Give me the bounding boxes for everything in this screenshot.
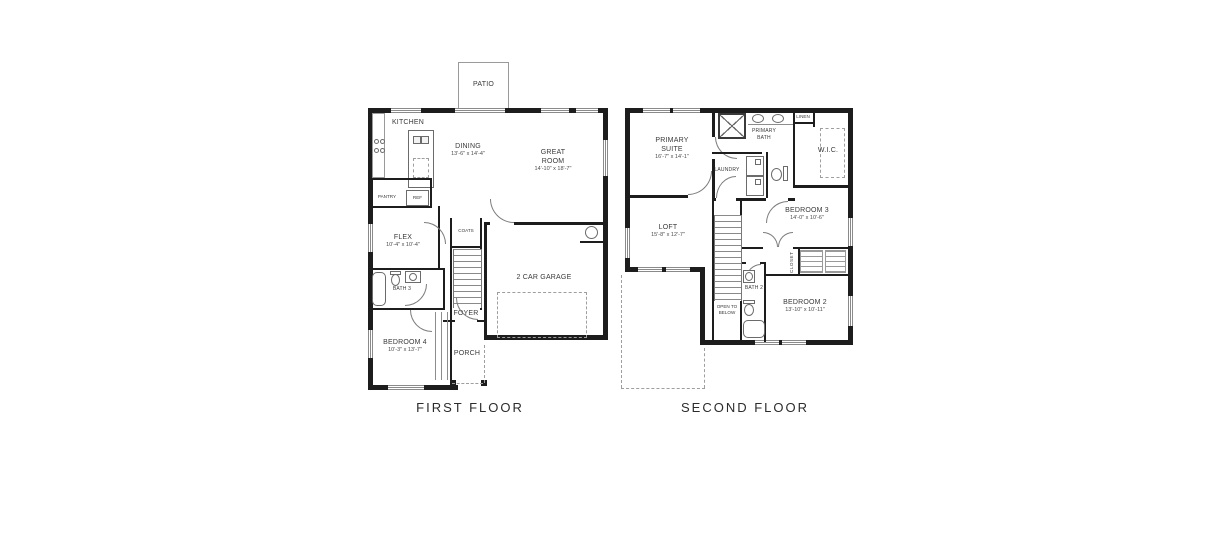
linen-label: LINEN [796,114,810,119]
room-label-bedroom4: BEDROOM 4 10'-3" x 13'-7" [376,338,434,354]
sink-icon [745,272,753,281]
patio-label: PATIO [473,81,494,88]
vanity-counter-line [748,124,793,125]
closet-shelves [825,250,846,273]
room-label-bedroom3: BEDROOM 3 14'-0" x 10'-6" [778,206,836,222]
bedroom2-dims: 13'-10" x 10'-11" [776,307,834,314]
closet-label: CLOSET [789,251,794,272]
laundry-label: LAUNDRY [714,167,739,173]
coats-label: COATS [458,228,473,233]
wall-segment [712,152,762,154]
sink-icon [752,114,764,123]
closet-door-line [435,312,436,380]
room-label-bedroom2: BEDROOM 2 13'-10" x 10'-11" [776,298,834,314]
bath2-label: BATH 2 [745,285,763,291]
closet-door-arc [778,232,793,247]
closet-door-arc [763,232,778,247]
wall-segment [793,122,813,124]
room-label-kitchen: KITCHEN [383,118,433,127]
garage-label: 2 CAR GARAGE [517,274,572,281]
window [576,108,598,113]
room-label-patio: PATIO [458,80,509,89]
window [368,224,373,252]
shower-icon [718,113,746,139]
loft-label: LOFT [659,224,678,231]
toilet-tank-icon [783,166,788,181]
wall-segment [712,113,715,137]
loft-dims: 15'-8" x 12'-7" [643,232,693,239]
wall-segment [373,178,432,180]
pantry-label: PANTRY [378,194,396,199]
primary-bath-label: PRIMARY BATH [752,128,776,141]
patio-slider-door [455,108,505,113]
range-burner-icon [374,148,379,153]
room-label-great-room: GREAT ROOM 14'-10" x 18'-7" [530,148,576,173]
room-label-coats: COATS [452,228,480,234]
window [755,340,779,345]
window [625,228,630,258]
wall-segment [630,195,688,198]
room-label-closet: CLOSET [789,249,798,275]
wall-segment [580,241,603,243]
room-label-bath2: BATH 2 [744,285,764,292]
flex-dims: 10'-4" x 10'-4" [378,242,428,249]
door-arc [410,310,432,332]
window [391,108,421,113]
water-heater-icon [585,226,598,239]
great-room-dims: 14'-10" x 18'-7" [530,166,576,173]
stairs [714,215,742,301]
floor-plan-canvas: PATIO KITCHEN [0,0,1218,538]
wall-segment [766,274,848,276]
room-label-laundry: LAUNDRY [710,167,744,174]
window [782,340,806,345]
window [666,267,690,272]
bedroom4-label: BEDROOM 4 [383,339,427,346]
wall-segment [373,308,445,310]
second-floor-caption: SECOND FLOOR [681,400,809,415]
closet-door-line [441,312,442,380]
room-label-wic: W.I.C. [810,146,846,155]
wall-segment [514,222,608,225]
wall-segment [788,198,795,201]
dining-dims: 13'-6" x 14'-4" [443,151,493,158]
primary-suite-label: PRIMARY SUITE [655,137,688,153]
bathtub-icon [372,272,386,306]
window [603,140,608,176]
room-label-bath3: BATH 3 [392,286,412,293]
room-label-dining: DINING 13'-6" x 14'-4" [443,142,493,158]
kitchen-label: KITCHEN [392,119,424,126]
room-label-primary-bath: PRIMARY BATH [746,128,782,141]
wall-segment [625,267,705,272]
wall-segment [430,178,432,208]
window [388,385,424,390]
porch-label: PORCH [454,350,480,357]
wall-segment [766,152,768,198]
wall-segment [742,262,746,264]
wall-segment [450,246,482,248]
wall-segment [450,308,452,388]
toilet-icon [771,168,782,181]
toilet-icon [744,304,754,316]
wall-segment [484,222,487,340]
bedroom4-dims: 10'-3" x 13'-7" [376,347,434,354]
room-label-linen: LINEN [793,114,813,120]
wall-segment [813,113,815,127]
bathtub-icon [743,320,765,338]
door-arc [716,176,736,198]
wall-segment [443,320,455,322]
open-below-dashed [621,275,622,388]
window [673,108,700,113]
range-burner-icon [380,139,385,144]
window [368,330,373,358]
porch-edge-dashed [452,383,483,384]
open-to-below-label: OPEN TO BELOW [717,304,738,315]
flex-label: FLEX [394,234,412,241]
wall-segment [700,267,705,345]
open-below-dashed [621,388,705,389]
island-sink-icon [413,136,421,144]
door-arc [688,171,712,195]
dryer-control-icon [755,179,761,185]
dishwasher-icon [413,158,429,178]
washer-control-icon [755,159,761,165]
window [541,108,569,113]
wall-segment [742,247,763,249]
range-burner-icon [374,139,379,144]
great-room-label: GREAT ROOM [541,149,566,165]
open-to-below-label-wrap: OPEN TO BELOW [708,304,746,316]
sink-icon [772,114,784,123]
wall-segment [712,159,715,198]
primary-suite-dims: 16'-7" x 14'-1" [645,154,699,161]
room-label-primary-suite: PRIMARY SUITE 16'-7" x 14'-1" [645,136,699,161]
door-arc [424,222,446,244]
closet-shelves [800,250,823,273]
wall-segment [373,268,445,270]
room-label-flex: FLEX 10'-4" x 10'-4" [378,233,428,249]
wall-segment [484,222,490,225]
ref-label-wrap: REF [406,195,429,201]
room-label-loft: LOFT 15'-8" x 12'-7" [643,223,693,239]
closet-door-line [447,312,448,380]
room-label-porch: PORCH [450,349,484,358]
first-floor-caption-text: FIRST FLOOR [416,400,524,415]
second-floor-caption-text: SECOND FLOOR [681,400,809,415]
window [638,267,662,272]
dining-label: DINING [455,143,481,150]
wall-segment [443,268,445,310]
room-label-garage: 2 CAR GARAGE [508,273,580,282]
wall-segment [373,206,432,208]
garage-entry-door-arc [490,199,514,223]
wall-segment [793,247,848,249]
open-below-dashed [704,348,705,388]
range-burner-icon [380,148,385,153]
wall-segment [793,185,853,188]
window [848,296,853,326]
window [643,108,670,113]
garage-pad-dashed [497,292,587,338]
first-floor-caption: FIRST FLOOR [416,400,524,415]
wic-label: W.I.C. [818,147,838,154]
toilet-icon [391,274,400,286]
porch-edge-dashed [484,345,485,383]
ref-label: REF [413,195,422,200]
window [848,218,853,246]
toilet-tank-icon [390,271,401,275]
island-sink-icon [421,136,429,144]
bath3-label: BATH 3 [393,286,411,292]
room-label-pantry: PANTRY [371,194,403,200]
bedroom3-label: BEDROOM 3 [785,207,829,214]
bedroom2-label: BEDROOM 2 [783,299,827,306]
door-arc [715,137,737,159]
sink-icon [409,273,417,281]
bedroom3-dims: 14'-0" x 10'-6" [778,215,836,222]
